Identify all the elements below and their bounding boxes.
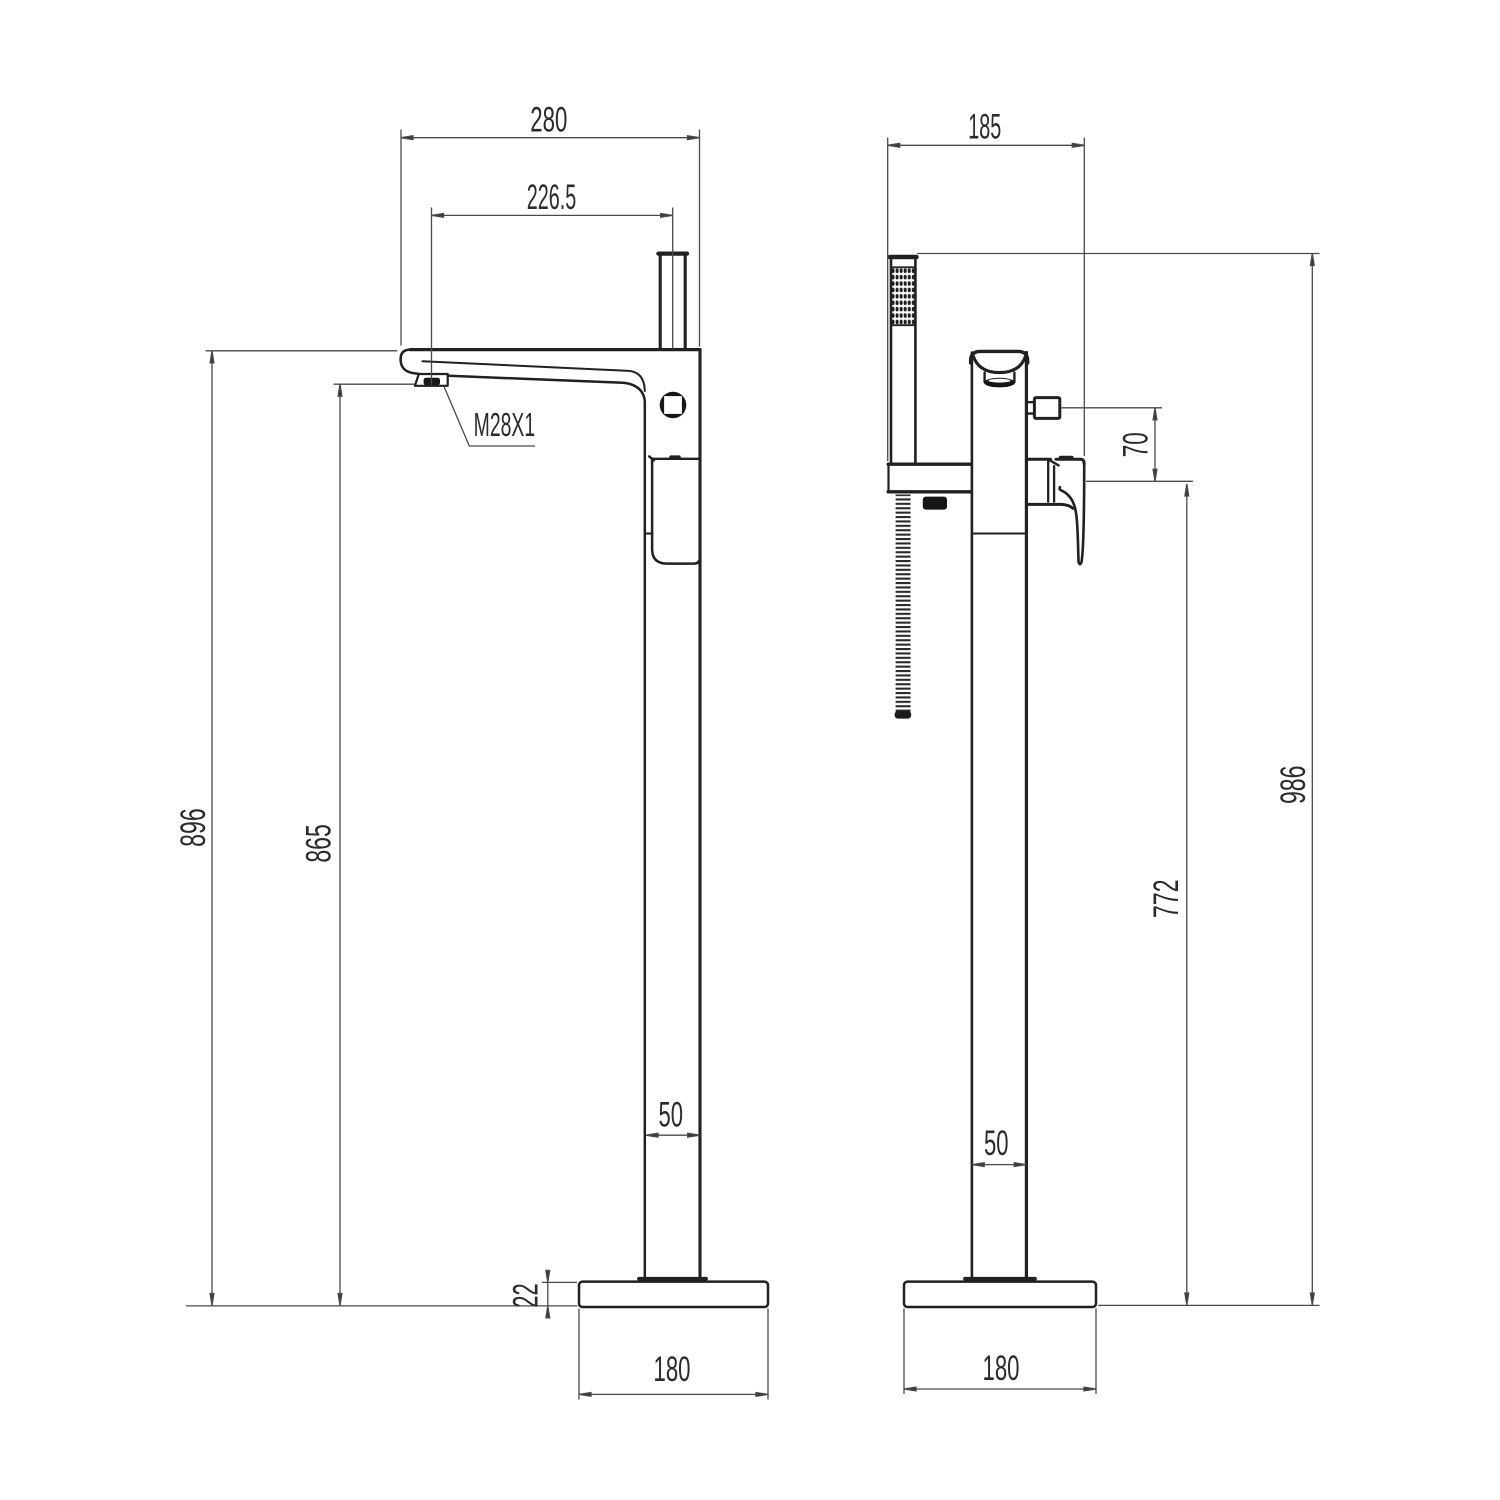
svg-text:M28X1: M28X1 — [474, 406, 536, 443]
svg-text:865: 865 — [299, 824, 339, 863]
svg-text:50: 50 — [658, 1095, 683, 1135]
svg-text:180: 180 — [654, 1349, 691, 1389]
svg-text:896: 896 — [173, 808, 213, 847]
svg-text:70: 70 — [1116, 432, 1156, 457]
svg-text:50: 50 — [984, 1123, 1009, 1163]
svg-text:22: 22 — [506, 1283, 546, 1308]
svg-text:772: 772 — [1146, 879, 1186, 918]
svg-text:226.5: 226.5 — [527, 177, 577, 217]
svg-text:280: 280 — [530, 99, 567, 139]
svg-text:180: 180 — [983, 1348, 1020, 1388]
svg-text:185: 185 — [968, 106, 1001, 146]
svg-text:986: 986 — [1273, 766, 1313, 805]
